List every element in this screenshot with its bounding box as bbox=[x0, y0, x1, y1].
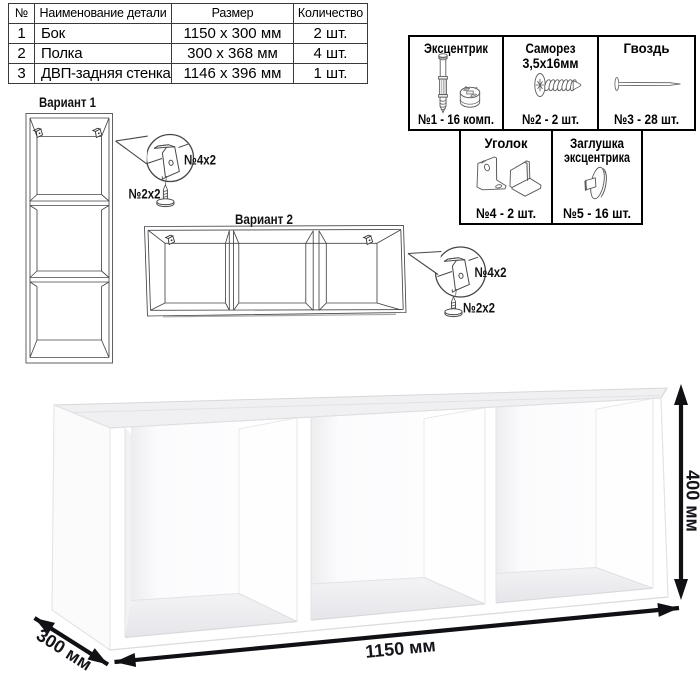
svg-text:Вариант 2: Вариант 2 bbox=[235, 211, 293, 227]
svg-text:№2х2: №2х2 bbox=[463, 300, 495, 316]
svg-text:№2 - 2 шт.: №2 - 2 шт. bbox=[522, 111, 579, 127]
svg-text:№3 - 28 шт.: №3 - 28 шт. bbox=[614, 111, 679, 127]
svg-text:Уголок: Уголок bbox=[485, 135, 529, 151]
svg-text:№4х2: №4х2 bbox=[475, 264, 507, 280]
svg-text:400 мм: 400 мм bbox=[683, 470, 700, 532]
svg-text:эксцентрика: эксцентрика bbox=[564, 149, 630, 165]
svg-text:Эксцентрик: Эксцентрик bbox=[424, 40, 489, 56]
svg-text:№5 - 16 шт.: №5 - 16 шт. bbox=[563, 205, 631, 221]
svg-text:№4х2: №4х2 bbox=[184, 152, 216, 168]
svg-text:Саморез: Саморез bbox=[526, 40, 576, 56]
svg-text:№4 - 2 шт.: №4 - 2 шт. bbox=[476, 205, 536, 221]
svg-text:Вариант 1: Вариант 1 bbox=[39, 94, 96, 110]
svg-text:3,5х16мм: 3,5х16мм bbox=[523, 55, 579, 71]
svg-text:Гвоздь: Гвоздь bbox=[624, 40, 670, 56]
svg-text:1150 мм: 1150 мм bbox=[364, 635, 436, 662]
svg-text:№2х2: №2х2 bbox=[129, 186, 161, 202]
svg-text:№1 - 16 комп.: №1 - 16 комп. bbox=[418, 111, 494, 127]
